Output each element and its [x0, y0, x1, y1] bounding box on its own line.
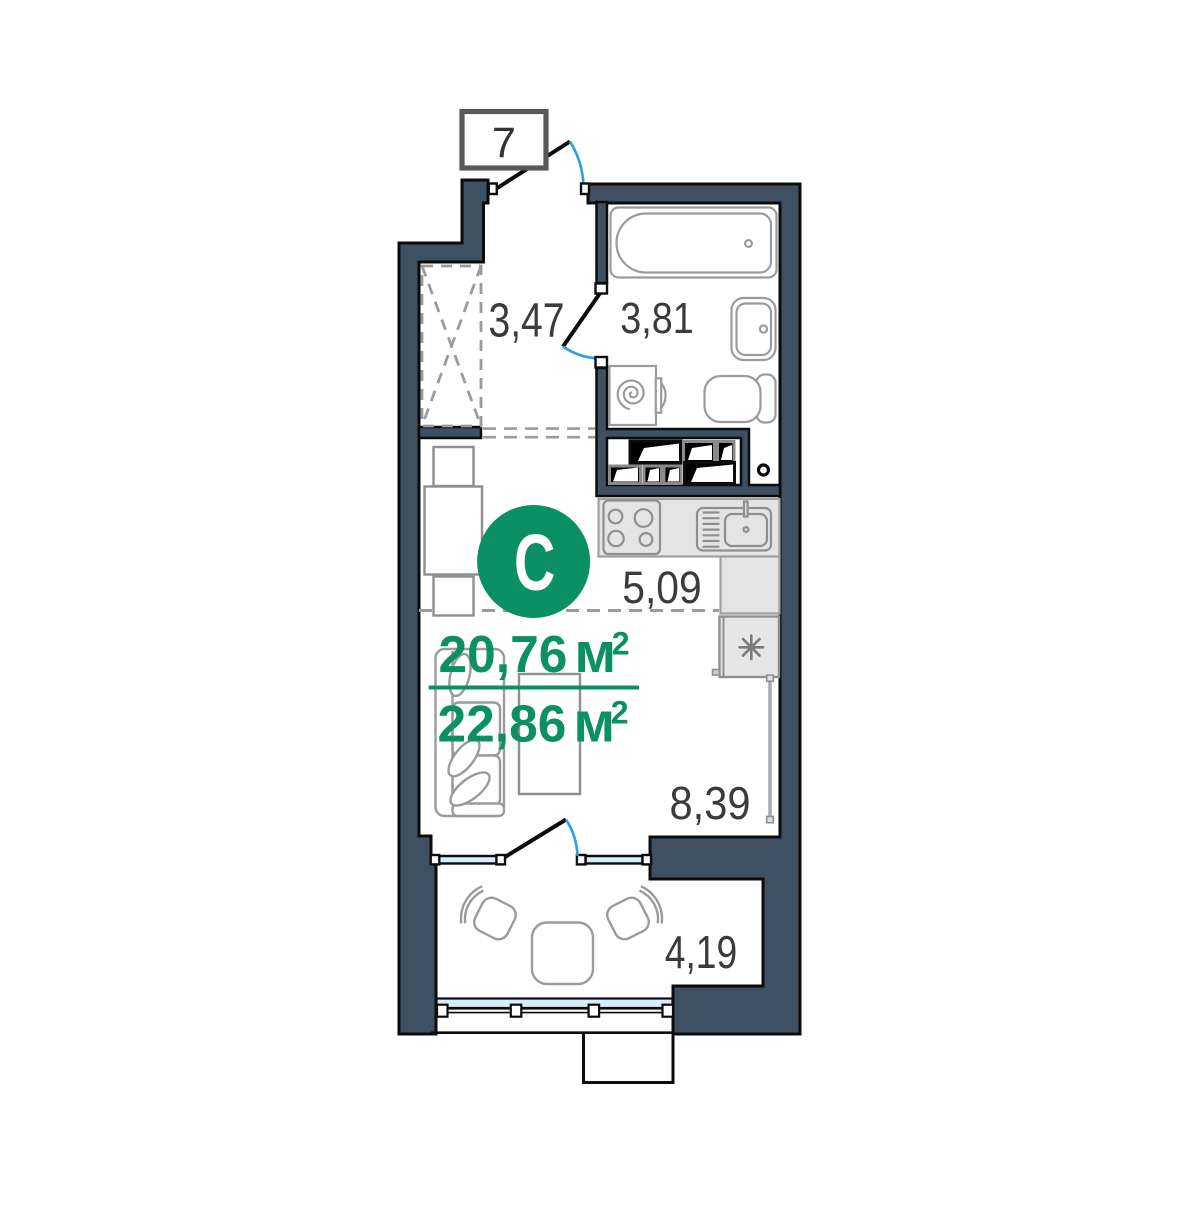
- svg-text:7: 7: [492, 119, 516, 167]
- svg-text:22,86м2: 22,86м2: [438, 690, 629, 753]
- svg-text:C: C: [514, 517, 555, 607]
- svg-text:20,76м2: 20,76м2: [439, 621, 630, 684]
- svg-text:3,81: 3,81: [620, 295, 694, 343]
- svg-text:5,09: 5,09: [622, 562, 702, 613]
- svg-text:8,39: 8,39: [670, 777, 751, 829]
- svg-text:4,19: 4,19: [665, 926, 738, 978]
- svg-text:3,47: 3,47: [489, 294, 565, 348]
